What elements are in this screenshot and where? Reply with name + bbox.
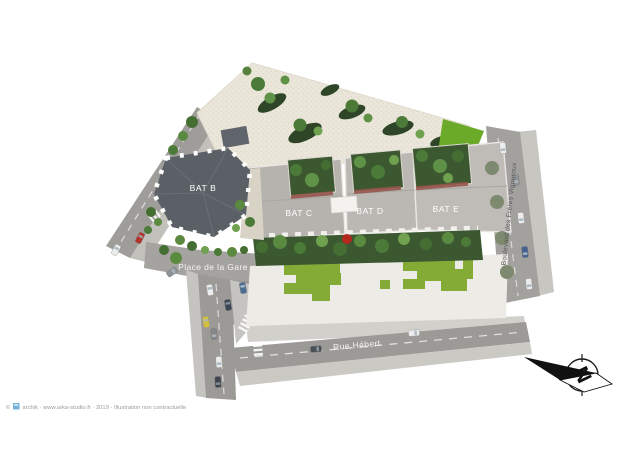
credit-line: © archik · www.arka-studio.fr · 2019 · I… bbox=[6, 403, 186, 411]
copyright-symbol: © bbox=[6, 404, 11, 411]
site-plan: BAT B BAT C BAT D BAT E Place de la Gare… bbox=[0, 0, 640, 470]
studio-logo-icon bbox=[13, 403, 20, 410]
car bbox=[216, 356, 223, 367]
car bbox=[310, 346, 321, 353]
car bbox=[521, 246, 528, 258]
bat-c-label: BAT C bbox=[285, 208, 312, 218]
studio-logo-detail bbox=[14, 404, 18, 405]
crosswalk bbox=[253, 344, 263, 356]
rooftop-module bbox=[331, 196, 358, 213]
site-plan-canvas: BAT B BAT C BAT D BAT E Place de la Gare… bbox=[0, 0, 640, 470]
car bbox=[211, 328, 218, 339]
car bbox=[517, 212, 524, 224]
place-de-la-gare-label: Place de la Gare bbox=[178, 262, 248, 272]
red-tree bbox=[342, 234, 352, 244]
car bbox=[499, 142, 506, 154]
car bbox=[215, 376, 222, 387]
car bbox=[408, 330, 419, 337]
car bbox=[525, 278, 532, 290]
bat-e-label: BAT E bbox=[433, 204, 460, 214]
bat-d-label: BAT D bbox=[356, 206, 383, 216]
credit-text: archik · www.arka-studio.fr · 2019 · Ill… bbox=[23, 405, 187, 411]
crosswalk bbox=[150, 272, 168, 289]
bat-b-label: BAT B bbox=[190, 183, 217, 193]
north-arrow: N bbox=[524, 354, 612, 396]
